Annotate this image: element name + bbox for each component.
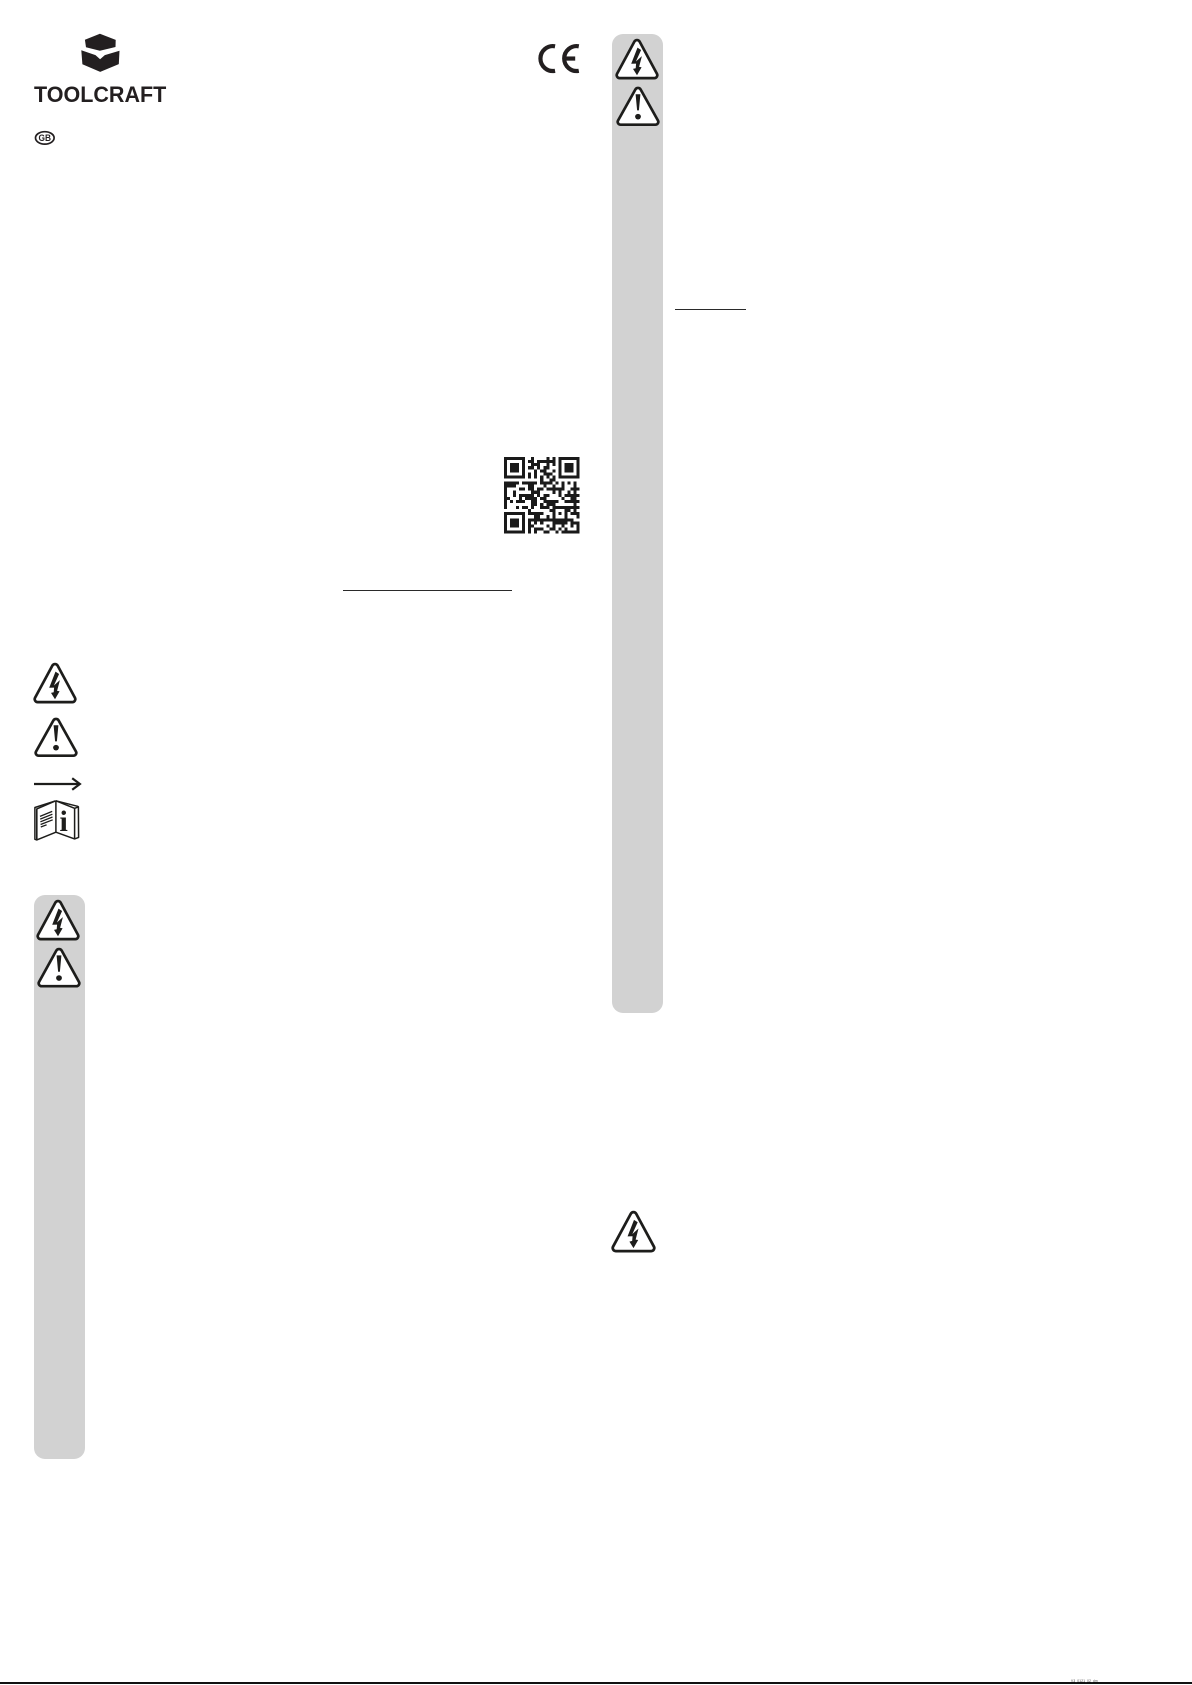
svg-text:i: i xyxy=(59,805,67,838)
svg-text:GB: GB xyxy=(39,133,52,143)
svg-text:TOOLCRAFT: TOOLCRAFT xyxy=(34,82,167,107)
